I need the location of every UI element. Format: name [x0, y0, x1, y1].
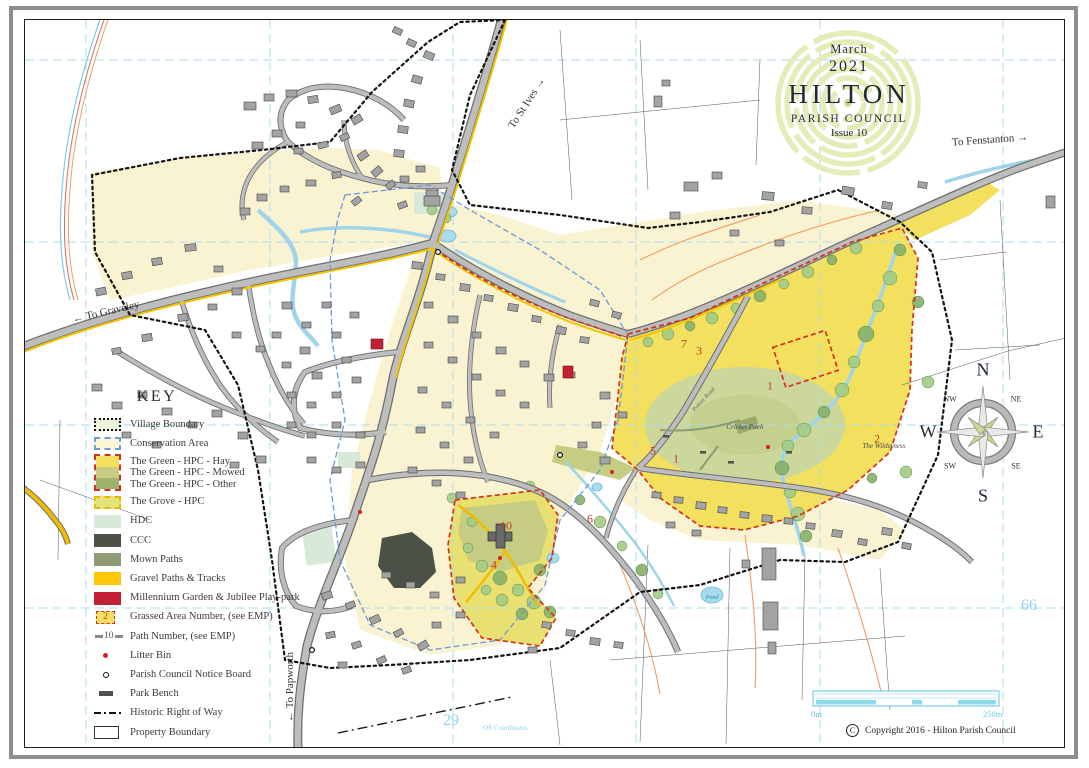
map-canvas: [0, 0, 1089, 768]
red-barn: [563, 366, 573, 378]
map-page: March 2021 HILTON PARISH COUNCIL Issue 1…: [0, 0, 1089, 768]
millennium-garden: [371, 339, 383, 349]
scale-bar: [813, 691, 999, 706]
